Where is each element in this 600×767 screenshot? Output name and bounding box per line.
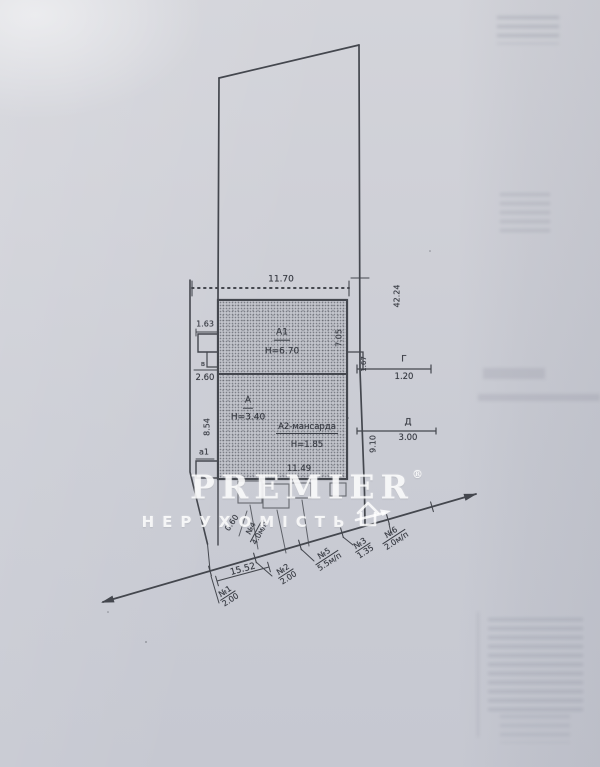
porch-label: в (201, 360, 205, 368)
scanned-site-plan: 11.70 42.24 А1 Н=6.70 7.05 1.63 в 2.60 8… (0, 0, 600, 767)
dim-g-offset: 1.67 (360, 356, 368, 372)
dim-left-wall: 8.54 (202, 418, 211, 436)
plan-linework (0, 0, 600, 767)
dim-d-offset: 9.10 (368, 435, 377, 453)
room-label-a1: А1 (274, 328, 290, 341)
annex-label: а1 (199, 447, 209, 456)
height-a2: Н=1.85 (291, 440, 323, 450)
house-with-arrow-icon (354, 499, 394, 531)
dim-side-length: 42.24 (392, 285, 401, 308)
mark-d: Д (404, 418, 411, 429)
room-label-a2: А2-мансарда (276, 422, 338, 434)
dim-d-length: 3.00 (399, 433, 418, 443)
dim-porch-depth: 2.60 (196, 373, 215, 383)
height-a: Н=3.40 (231, 413, 265, 424)
dim-g-length: 1.20 (395, 372, 414, 382)
dim-front-width: 11.70 (268, 275, 294, 286)
room-label-a: А (243, 396, 253, 409)
registered-trademark-icon: ® (412, 468, 423, 481)
mark-g: Г (401, 355, 407, 366)
watermark-subtitle: НЕРУХОМІСТЬ (142, 513, 353, 531)
dim-porch-width: 1.63 (196, 319, 214, 328)
height-a1: Н=6.70 (265, 347, 299, 358)
dim-a1-depth: 7.05 (334, 329, 343, 347)
